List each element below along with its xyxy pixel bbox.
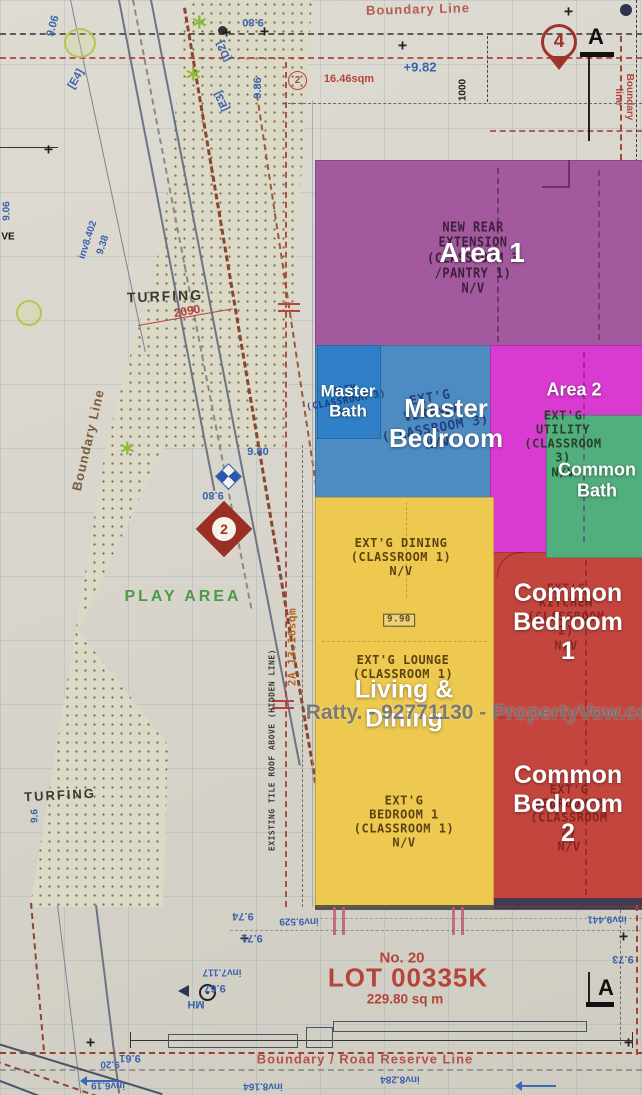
lot-area-label: 229.80 sq m [367,992,444,1007]
area-2a-label: 2A 13.16sqm [287,608,300,686]
label-area-2: Area 2 [546,380,601,401]
survey-cross-icon [398,36,407,54]
survey-peg-blob [620,4,632,16]
spot-level-974: 9.74 [232,910,253,922]
lot-boundary-dash [230,930,640,931]
house-red-dash-left [285,62,287,907]
label-area-1: Area 1 [439,237,525,269]
roof-note-label: EXISTING TILE ROOF ABOVE (HIDDEN LINE) [267,649,276,851]
label-master-bedroom: Master Bedroom [389,394,503,454]
spot-level-980-top: 9.80 [242,16,263,28]
spot-inv8164: inv8.164 [243,1081,282,1092]
house-wall-dash [302,445,303,907]
shrub-icon [192,22,207,32]
marker-2-circle: 2 [288,71,307,90]
watermark: Ratty. - 92771130 - PropertyVow.com [306,701,642,725]
section-a-bottom-bar [586,1002,614,1007]
spot-level-906-b: 9.06 [2,201,13,220]
label-common-bath: Common Bath [558,459,636,500]
edge-text-ve: VE [1,232,14,243]
wall-bottom-strip [494,898,642,905]
spot-inv8284: inv8.284 [380,1074,419,1085]
spot-level-973: 9.73 [612,953,633,965]
wall-section-rect [306,1027,333,1048]
spot-level-96: 9.6 [30,809,41,823]
label-common-bedroom-2: Common Bedroom 2 [513,761,623,847]
wall-step [542,160,570,188]
marker-2-diamond-circle: 2 [212,517,236,541]
spot-mh: MH [187,998,204,1010]
spot-level-961: 9.61 [119,1052,140,1064]
boundary-right-dash [636,0,637,162]
wall-dash [598,170,600,340]
dim-line-1000 [487,36,488,102]
road-reserve-label: Boundary / Road Reserve Line [257,1052,474,1067]
section-a-top-stem [588,57,590,141]
survey-cross-icon [44,140,53,158]
wall-red-tick [278,310,300,312]
manhole-arrow-icon [178,985,189,997]
survey-cross-icon [86,1033,95,1051]
boundary-right-label: Boundary line [613,74,635,121]
marker-4-arrow-icon [548,56,570,70]
marker-2-number: 2 [295,75,301,86]
boundary-top-label: Boundary Line [366,0,470,18]
tree-icon [16,300,42,326]
spot-level-971: 9.71 [241,932,262,944]
plan-text-dining: EXT'G DINING (CLASSROOM 1) N/V [351,536,451,578]
spot-level-982: +9.82 [404,60,437,75]
marker-2-diamond-number: 2 [220,521,228,537]
section-a-bottom-label: A [598,975,614,1001]
spot-level-986: 9.86 [252,77,264,98]
shrub-icon [120,448,135,458]
spot-level-980-mid: 9.80 [247,446,268,458]
wall-bottom-strip [315,905,642,910]
section-a-top-bar [580,52,614,57]
plan-text-bedroom-1: EXT'G BEDROOM 1 (CLASSROOM 1) N/V [354,794,454,851]
spot-level-920: 9.20 [100,1059,119,1070]
road-reserve-gray-dash [0,1069,642,1071]
wall-red-tick [278,303,300,305]
boundary-top-red-dash [0,57,642,59]
site-floor-plan: NEW REAR EXTENSION (CLASSROOM 3 /PANTRY … [0,0,642,1095]
spot-level-967: 9.67 [204,982,225,994]
lot-id-label: LOT 00335K [328,963,488,994]
label-master-bath: Master Bath [321,381,376,420]
boundary-right-red-dash [636,905,638,1055]
boundary-right-dash [620,905,621,1045]
wall-section-rect [333,1021,587,1032]
house-wall-line [312,100,313,907]
flow-arrow-icon [520,1085,556,1087]
area-2-sqm-label: 16.46sqm [324,73,374,85]
dim-1000-label: 1000 [458,79,469,101]
play-area-label: PLAY AREA [124,588,241,606]
wall-dash [322,641,487,642]
spot-inv619: inv6.19 [91,1080,125,1091]
shrub-icon [186,74,201,84]
wall-section-rect [168,1034,298,1048]
label-common-bedroom-1: Common Bedroom 1 [513,579,623,665]
level-badge-990: 9.90 [383,614,415,627]
dim-tick [130,1032,131,1048]
marker-4-number: 4 [554,31,565,53]
spot-inv9529: inv9.529 [279,916,318,927]
spot-level-980-diamond: 9.80 [202,489,223,501]
section-a-top-label: A [588,24,604,50]
tree-icon [64,28,96,58]
dim-tick [632,1032,633,1048]
spot-inv7117: inv7.117 [203,967,242,978]
section-a-bottom-stem [588,972,590,1002]
marker-4-circle: 4 [541,24,577,60]
survey-cross-icon [564,2,573,20]
